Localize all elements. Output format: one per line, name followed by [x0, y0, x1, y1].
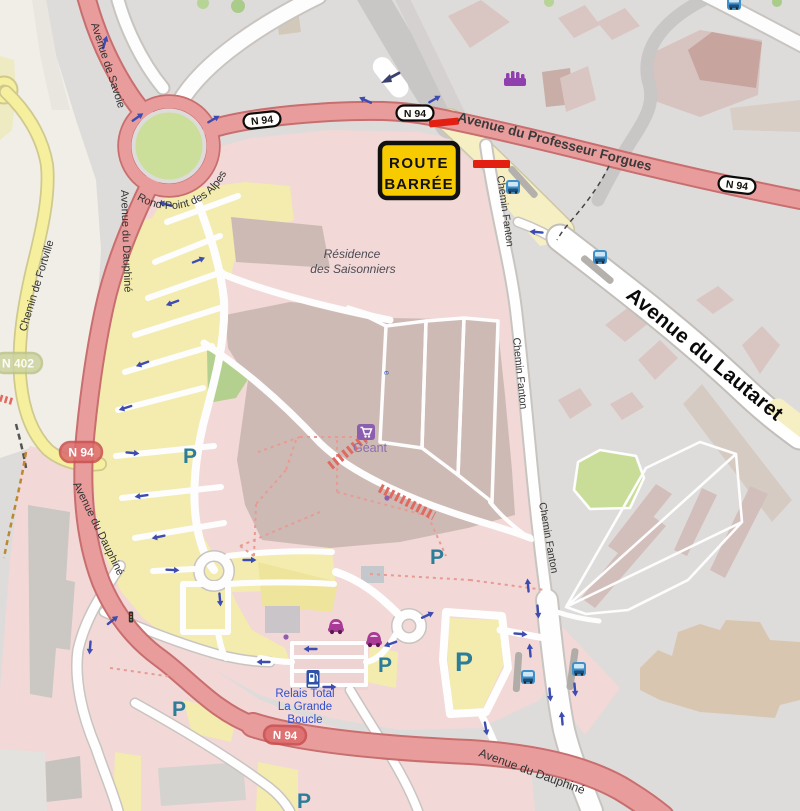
svg-text:P: P	[378, 654, 392, 677]
svg-text:ROUTE: ROUTE	[389, 155, 449, 172]
svg-text:P: P	[455, 647, 473, 677]
svg-text:N 94: N 94	[68, 446, 94, 460]
svg-text:N 94: N 94	[273, 730, 298, 743]
svg-text:Relais Total: Relais Total	[275, 688, 334, 700]
svg-text:Boucle: Boucle	[287, 714, 322, 726]
svg-text:BARRÉE: BARRÉE	[384, 176, 453, 193]
svg-text:Géant: Géant	[353, 441, 388, 455]
svg-text:P: P	[430, 546, 444, 569]
svg-text:Résidence: Résidence	[324, 247, 381, 261]
svg-text:P: P	[297, 790, 311, 811]
svg-text:P: P	[183, 445, 197, 468]
svg-text:P: P	[172, 698, 186, 721]
svg-text:N 402: N 402	[2, 357, 34, 371]
svg-text:La Grande: La Grande	[278, 701, 332, 713]
svg-text:des Saisonniers: des Saisonniers	[310, 262, 395, 276]
